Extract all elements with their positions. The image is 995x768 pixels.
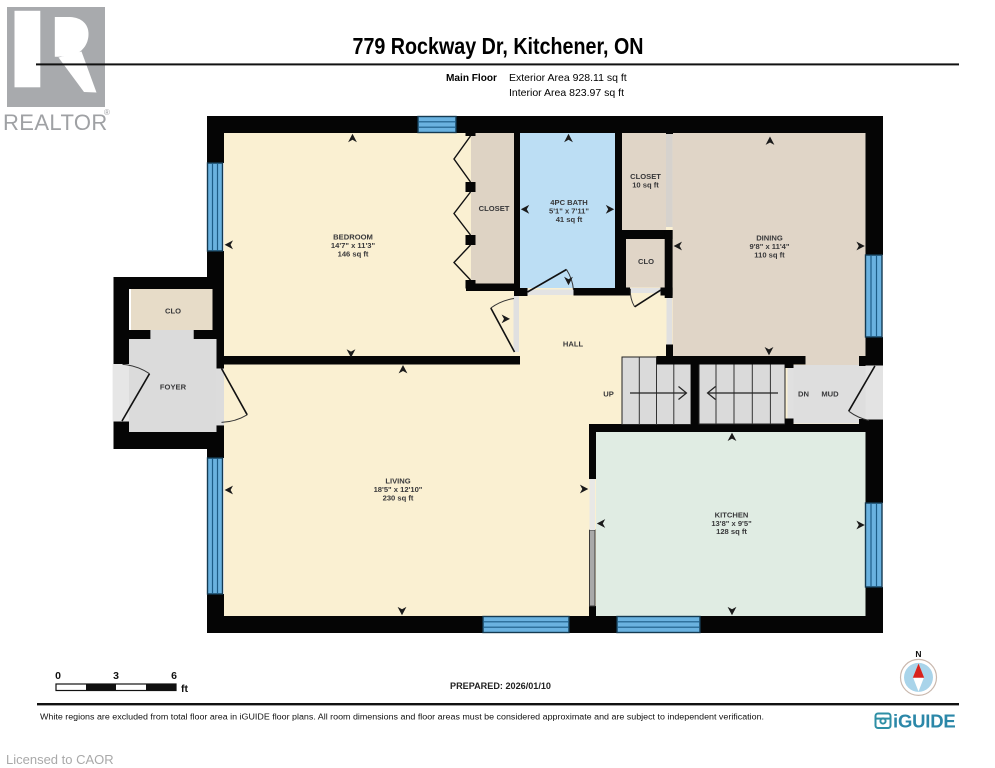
svg-text:3: 3	[113, 670, 119, 682]
svg-text:®: ®	[104, 108, 110, 117]
svg-text:REALTOR: REALTOR	[3, 110, 108, 135]
svg-text:Interior Area 823.97 sq ft: Interior Area 823.97 sq ft	[509, 87, 624, 99]
svg-text:CLOSET: CLOSET	[479, 204, 510, 213]
svg-text:CLO: CLO	[638, 257, 654, 266]
svg-text:N: N	[915, 649, 921, 659]
svg-text:Licensed to CAOR: Licensed to CAOR	[6, 752, 114, 767]
svg-text:128 sq ft: 128 sq ft	[716, 527, 747, 536]
svg-text:10 sq ft: 10 sq ft	[632, 181, 659, 190]
svg-text:6: 6	[171, 670, 177, 682]
svg-text:CLO: CLO	[165, 307, 181, 316]
svg-text:146 sq ft: 146 sq ft	[338, 249, 369, 258]
svg-text:0: 0	[55, 670, 61, 682]
svg-text:41 sq ft: 41 sq ft	[556, 215, 583, 224]
svg-text:HALL: HALL	[563, 340, 584, 349]
svg-text:DN: DN	[798, 390, 809, 399]
svg-text:Main Floor: Main Floor	[446, 72, 497, 84]
svg-text:PREPARED: 2026/01/10: PREPARED: 2026/01/10	[450, 681, 551, 692]
svg-text:UP: UP	[603, 390, 614, 399]
svg-text:230 sq ft: 230 sq ft	[383, 493, 414, 502]
svg-text:FOYER: FOYER	[160, 383, 187, 392]
svg-text:MUD: MUD	[821, 390, 839, 399]
svg-text:White regions are excluded fro: White regions are excluded from total fl…	[40, 713, 764, 722]
svg-text:iGUIDE: iGUIDE	[893, 711, 956, 732]
svg-text:779 Rockway Dr, Kitchener, ON: 779 Rockway Dr, Kitchener, ON	[353, 33, 644, 59]
svg-text:ft: ft	[181, 683, 188, 695]
svg-text:110 sq ft: 110 sq ft	[754, 250, 785, 259]
svg-text:Exterior Area 928.11 sq ft: Exterior Area 928.11 sq ft	[509, 72, 627, 84]
